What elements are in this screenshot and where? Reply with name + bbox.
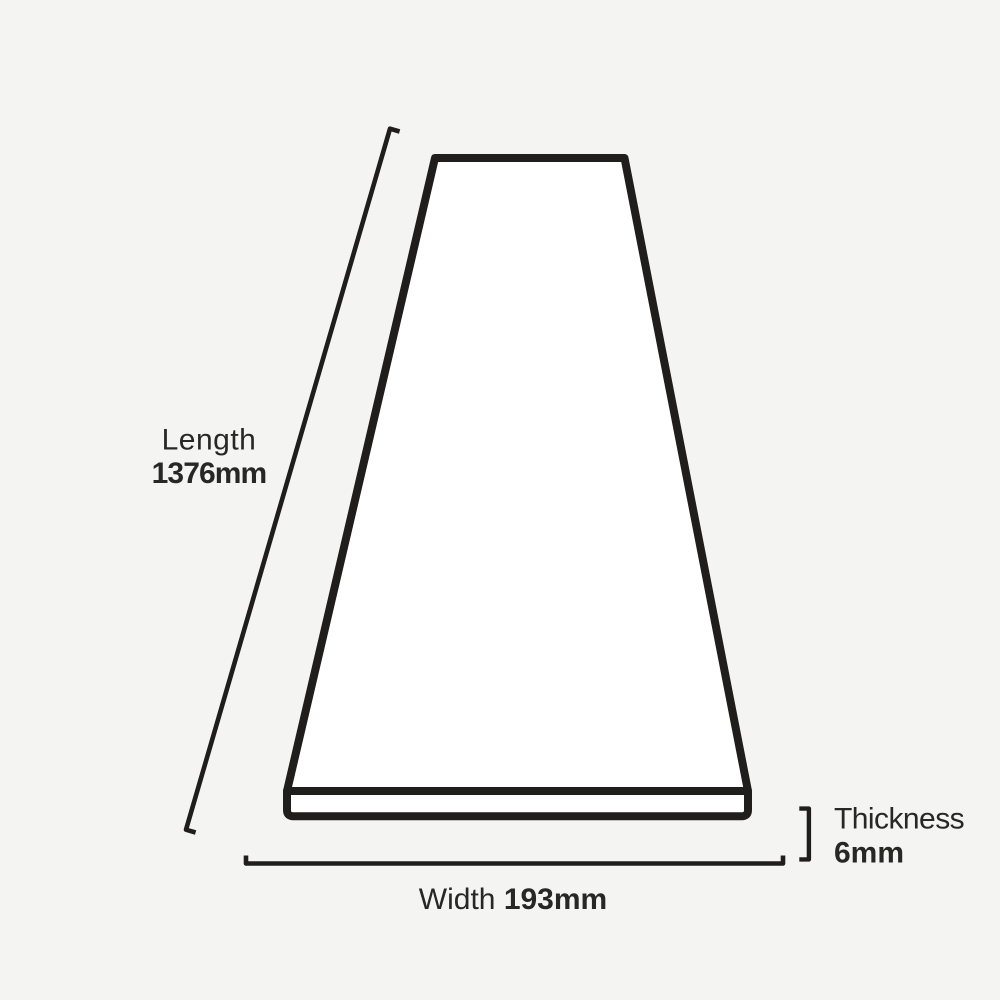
svg-text:Length: Length bbox=[162, 424, 257, 457]
svg-text:Width 193mm: Width 193mm bbox=[419, 883, 607, 916]
svg-text:1376mm: 1376mm bbox=[152, 457, 267, 490]
svg-text:Thickness: Thickness bbox=[834, 803, 964, 836]
svg-text:6mm: 6mm bbox=[834, 837, 904, 870]
